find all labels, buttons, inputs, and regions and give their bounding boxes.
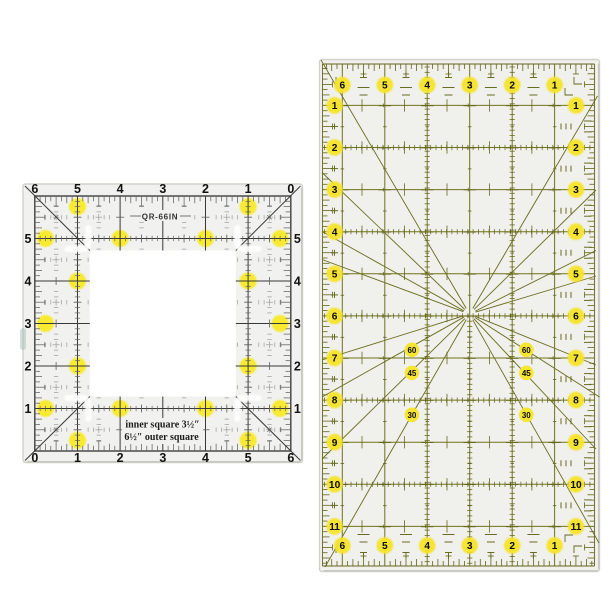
svg-text:2: 2 [573,143,579,154]
svg-text:2: 2 [25,359,32,373]
svg-text:2: 2 [509,541,515,552]
svg-text:3: 3 [159,182,166,196]
svg-text:9: 9 [332,438,338,449]
svg-text:QR-66IN: QR-66IN [142,212,178,221]
svg-text:4: 4 [25,274,32,288]
svg-text:6: 6 [31,182,38,196]
svg-text:10: 10 [329,480,341,491]
svg-text:1: 1 [74,451,81,465]
svg-text:inner square 3½″: inner square 3½″ [125,420,199,431]
svg-text:4: 4 [424,541,430,552]
svg-text:6½″ outer square: 6½″ outer square [124,432,199,443]
svg-text:5: 5 [294,232,301,246]
svg-text:9: 9 [573,438,579,449]
svg-text:0: 0 [287,182,294,196]
svg-text:2: 2 [117,451,124,465]
svg-text:1: 1 [573,101,579,112]
svg-text:6: 6 [339,541,345,552]
svg-text:1: 1 [332,101,338,112]
svg-text:6: 6 [332,312,338,323]
svg-text:1: 1 [552,81,558,92]
svg-text:3: 3 [467,541,473,552]
svg-text:3: 3 [467,81,473,92]
svg-text:3: 3 [294,317,301,331]
svg-text:3: 3 [332,185,338,196]
svg-text:5: 5 [382,81,388,92]
svg-text:45: 45 [522,369,531,378]
svg-text:1: 1 [245,182,252,196]
svg-text:5: 5 [382,541,388,552]
svg-text:30: 30 [407,411,416,420]
svg-text:2: 2 [294,359,301,373]
svg-text:7: 7 [573,354,579,365]
svg-text:1: 1 [552,541,558,552]
svg-text:8: 8 [573,396,579,407]
svg-text:8: 8 [332,396,338,407]
svg-text:1: 1 [25,402,32,416]
svg-text:60: 60 [407,346,416,355]
svg-text:60: 60 [522,346,531,355]
svg-text:6: 6 [287,451,294,465]
svg-text:11: 11 [571,522,582,533]
svg-text:45: 45 [407,369,416,378]
svg-text:3: 3 [25,317,32,331]
svg-text:4: 4 [424,81,430,92]
svg-text:5: 5 [332,269,338,280]
svg-text:4: 4 [294,274,301,288]
svg-text:2: 2 [332,143,338,154]
svg-text:1: 1 [294,402,301,416]
svg-text:4: 4 [117,182,124,196]
svg-text:5: 5 [74,182,81,196]
svg-text:5: 5 [573,269,579,280]
svg-text:4: 4 [332,227,338,238]
svg-text:6: 6 [339,81,345,92]
svg-text:6: 6 [573,312,579,323]
svg-text:2: 2 [202,182,209,196]
svg-text:5: 5 [25,232,32,246]
svg-text:7: 7 [332,354,338,365]
svg-text:5: 5 [245,451,252,465]
svg-text:0: 0 [31,451,38,465]
svg-text:30: 30 [522,411,531,420]
svg-text:11: 11 [329,522,340,533]
svg-text:3: 3 [159,451,166,465]
svg-text:10: 10 [570,480,582,491]
svg-text:4: 4 [573,227,579,238]
svg-text:4: 4 [202,451,209,465]
svg-text:2: 2 [509,81,515,92]
svg-text:3: 3 [573,185,579,196]
